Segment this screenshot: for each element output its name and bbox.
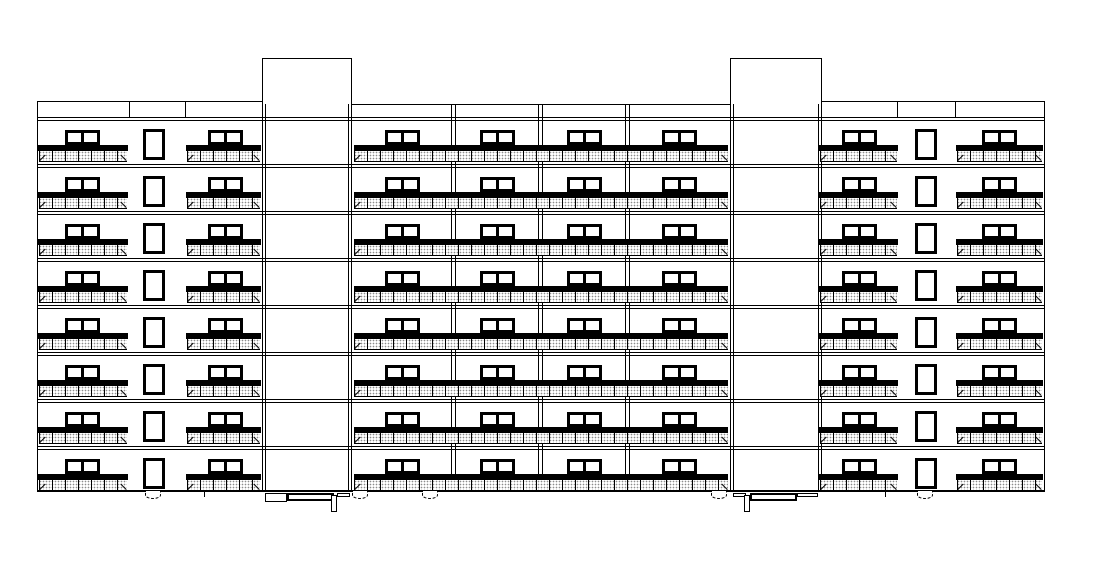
- balcony-railing: [820, 339, 897, 350]
- window-mullion: [998, 180, 1001, 189]
- balcony-window: [208, 224, 243, 239]
- stair-window: [915, 176, 937, 207]
- balcony-window: [662, 459, 697, 474]
- balcony-window: [842, 318, 877, 333]
- window-mullion: [496, 180, 499, 189]
- balcony-window: [385, 224, 420, 239]
- balcony-window: [842, 271, 877, 286]
- window-mullion: [678, 227, 681, 236]
- balcony-railing: [354, 386, 728, 397]
- entrance-canopy-slab: [750, 493, 797, 501]
- window-mullion: [858, 462, 861, 471]
- window-mullion: [998, 462, 1001, 471]
- floor-slab-line: [37, 305, 1045, 309]
- balcony-window: [385, 365, 420, 380]
- balcony-railing: [187, 151, 260, 162]
- balcony-window: [662, 412, 697, 427]
- window-mullion: [401, 133, 404, 142]
- window-mullion: [858, 227, 861, 236]
- balcony-window: [662, 318, 697, 333]
- window-mullion: [678, 368, 681, 377]
- balcony-railing: [39, 386, 127, 397]
- balcony-window: [567, 365, 602, 380]
- window-mullion: [678, 321, 681, 330]
- balcony-window: [65, 412, 100, 427]
- window-mullion: [81, 274, 84, 283]
- window-mullion: [224, 227, 227, 236]
- balcony-window: [65, 130, 100, 145]
- foundation-tick: [885, 491, 886, 497]
- window-mullion: [998, 321, 1001, 330]
- balcony-window: [567, 130, 602, 145]
- stair-window: [143, 411, 165, 442]
- window-mullion: [224, 462, 227, 471]
- balcony-railing: [39, 433, 127, 444]
- balcony-window: [65, 271, 100, 286]
- floor-slab-line: [37, 211, 1045, 215]
- balcony-railing: [820, 386, 897, 397]
- balcony-window: [480, 412, 515, 427]
- window-mullion: [81, 368, 84, 377]
- window-mullion: [224, 415, 227, 424]
- stair-window: [915, 458, 937, 489]
- window-mullion: [678, 415, 681, 424]
- balcony-window: [842, 177, 877, 192]
- floor-slab-line: [37, 164, 1045, 168]
- balcony-window: [385, 318, 420, 333]
- entrance-canopy-box: [265, 493, 287, 502]
- balcony-window: [385, 412, 420, 427]
- balcony-railing: [187, 198, 260, 209]
- balcony-window: [567, 224, 602, 239]
- balcony-railing: [820, 245, 897, 256]
- window-mullion: [224, 180, 227, 189]
- window-mullion: [998, 415, 1001, 424]
- stair-window: [915, 223, 937, 254]
- balcony-railing: [820, 292, 897, 303]
- window-mullion: [583, 180, 586, 189]
- balcony-railing: [39, 198, 127, 209]
- balcony-railing: [39, 245, 127, 256]
- balcony-railing: [187, 245, 260, 256]
- balcony-window: [208, 318, 243, 333]
- window-mullion: [496, 462, 499, 471]
- window-mullion: [401, 180, 404, 189]
- foundation-vent-arc: [711, 491, 727, 499]
- floor-slab-line: [37, 446, 1045, 450]
- balcony-railing: [957, 245, 1042, 256]
- balcony-window: [662, 177, 697, 192]
- window-mullion: [583, 321, 586, 330]
- window-mullion: [858, 133, 861, 142]
- parapet-divider: [185, 101, 186, 117]
- window-mullion: [224, 321, 227, 330]
- balcony-railing: [820, 433, 897, 444]
- window-mullion: [224, 133, 227, 142]
- roof-parapet: [822, 101, 1045, 117]
- balcony-window: [480, 459, 515, 474]
- window-mullion: [678, 462, 681, 471]
- window-mullion: [401, 415, 404, 424]
- window-mullion: [583, 274, 586, 283]
- balcony-window: [842, 459, 877, 474]
- balcony-railing: [187, 339, 260, 350]
- balcony-window: [480, 224, 515, 239]
- window-mullion: [81, 227, 84, 236]
- balcony-window: [480, 271, 515, 286]
- stair-window: [915, 364, 937, 395]
- window-mullion: [224, 274, 227, 283]
- balcony-window: [65, 318, 100, 333]
- balcony-window: [385, 459, 420, 474]
- roof-line: [352, 104, 730, 105]
- floor-slab-line: [37, 352, 1045, 356]
- window-mullion: [81, 180, 84, 189]
- balcony-window: [208, 271, 243, 286]
- stair-window: [143, 317, 165, 348]
- balcony-window: [208, 130, 243, 145]
- stair-window: [143, 176, 165, 207]
- window-mullion: [496, 415, 499, 424]
- balcony-window: [842, 365, 877, 380]
- balcony-railing: [187, 292, 260, 303]
- window-mullion: [81, 415, 84, 424]
- window-mullion: [81, 321, 84, 330]
- balcony-window: [982, 365, 1017, 380]
- balcony-window: [208, 365, 243, 380]
- balcony-railing: [187, 433, 260, 444]
- balcony-railing: [957, 339, 1042, 350]
- stair-window: [143, 223, 165, 254]
- balcony-railing: [354, 339, 728, 350]
- balcony-window: [567, 177, 602, 192]
- balcony-window: [65, 459, 100, 474]
- window-mullion: [858, 368, 861, 377]
- balcony-railing: [39, 292, 127, 303]
- balcony-railing: [957, 386, 1042, 397]
- stair-window: [143, 129, 165, 160]
- stair-window: [915, 411, 937, 442]
- window-mullion: [998, 133, 1001, 142]
- parapet-divider: [129, 101, 130, 117]
- parapet-divider: [955, 101, 956, 117]
- foundation-tick: [204, 491, 205, 497]
- balcony-window: [480, 130, 515, 145]
- window-mullion: [858, 321, 861, 330]
- window-mullion: [583, 462, 586, 471]
- balcony-railing: [957, 198, 1042, 209]
- entrance-canopy-post: [331, 495, 337, 512]
- stair-tower: [730, 58, 822, 491]
- balcony-window: [567, 271, 602, 286]
- balcony-window: [65, 177, 100, 192]
- window-mullion: [496, 274, 499, 283]
- foundation-vent-arc: [145, 491, 161, 499]
- balcony-railing: [354, 245, 728, 256]
- floor-slab-line: [37, 258, 1045, 262]
- balcony-window: [385, 177, 420, 192]
- balcony-window: [982, 177, 1017, 192]
- entrance-canopy-slab: [287, 493, 334, 501]
- balcony-railing: [820, 198, 897, 209]
- balcony-window: [480, 318, 515, 333]
- elevation-drawing: [0, 0, 1112, 573]
- foundation-vent-arc: [917, 491, 933, 499]
- balcony-window: [982, 412, 1017, 427]
- balcony-window: [208, 177, 243, 192]
- balcony-railing: [39, 339, 127, 350]
- stair-window: [915, 270, 937, 301]
- balcony-railing: [957, 151, 1042, 162]
- balcony-window: [480, 365, 515, 380]
- stair-window: [915, 317, 937, 348]
- balcony-railing: [820, 151, 897, 162]
- parapet-divider: [897, 101, 898, 117]
- stair-window: [143, 458, 165, 489]
- window-mullion: [678, 180, 681, 189]
- window-mullion: [858, 415, 861, 424]
- window-mullion: [81, 462, 84, 471]
- building-wall-right: [1044, 101, 1045, 491]
- window-mullion: [583, 227, 586, 236]
- stair-window: [143, 364, 165, 395]
- balcony-railing: [354, 433, 728, 444]
- balcony-window: [208, 459, 243, 474]
- balcony-window: [842, 130, 877, 145]
- balcony-window: [842, 412, 877, 427]
- balcony-window: [567, 459, 602, 474]
- balcony-window: [480, 177, 515, 192]
- balcony-window: [982, 224, 1017, 239]
- balcony-window: [662, 271, 697, 286]
- window-mullion: [401, 462, 404, 471]
- foundation-vent-arc: [352, 491, 368, 499]
- balcony-window: [662, 365, 697, 380]
- balcony-railing: [354, 151, 728, 162]
- entrance-canopy-box: [797, 493, 818, 497]
- window-mullion: [496, 321, 499, 330]
- window-mullion: [858, 180, 861, 189]
- window-mullion: [998, 368, 1001, 377]
- window-mullion: [496, 227, 499, 236]
- window-mullion: [678, 133, 681, 142]
- floor-slab-line: [37, 117, 1045, 121]
- balcony-window: [662, 224, 697, 239]
- window-mullion: [81, 133, 84, 142]
- window-mullion: [858, 274, 861, 283]
- window-mullion: [224, 368, 227, 377]
- stair-tower: [262, 58, 352, 491]
- balcony-window: [982, 459, 1017, 474]
- balcony-window: [982, 271, 1017, 286]
- balcony-window: [567, 412, 602, 427]
- balcony-window: [662, 130, 697, 145]
- window-mullion: [496, 368, 499, 377]
- window-mullion: [998, 227, 1001, 236]
- window-mullion: [401, 368, 404, 377]
- balcony-railing: [957, 433, 1042, 444]
- balcony-window: [385, 130, 420, 145]
- window-mullion: [583, 368, 586, 377]
- foundation-vent-arc: [422, 491, 438, 499]
- window-mullion: [678, 274, 681, 283]
- window-mullion: [401, 274, 404, 283]
- ground-line: [37, 490, 1045, 492]
- tower-wall-line: [348, 104, 349, 491]
- stair-window: [143, 270, 165, 301]
- balcony-window: [208, 412, 243, 427]
- balcony-railing: [957, 292, 1042, 303]
- window-mullion: [401, 227, 404, 236]
- balcony-railing: [354, 198, 728, 209]
- window-mullion: [496, 133, 499, 142]
- balcony-window: [65, 365, 100, 380]
- tower-wall-line: [265, 104, 266, 491]
- balcony-window: [567, 318, 602, 333]
- balcony-window: [982, 318, 1017, 333]
- roof-parapet: [37, 101, 262, 117]
- balcony-railing: [187, 386, 260, 397]
- balcony-window: [982, 130, 1017, 145]
- window-mullion: [583, 133, 586, 142]
- balcony-railing: [354, 292, 728, 303]
- balcony-railing: [39, 151, 127, 162]
- floor-slab-line: [37, 399, 1045, 403]
- balcony-window: [842, 224, 877, 239]
- entrance-canopy-box: [337, 493, 350, 497]
- balcony-window: [385, 271, 420, 286]
- window-mullion: [401, 321, 404, 330]
- balcony-window: [65, 224, 100, 239]
- window-mullion: [583, 415, 586, 424]
- window-mullion: [998, 274, 1001, 283]
- stair-window: [915, 129, 937, 160]
- tower-wall-line: [733, 104, 734, 491]
